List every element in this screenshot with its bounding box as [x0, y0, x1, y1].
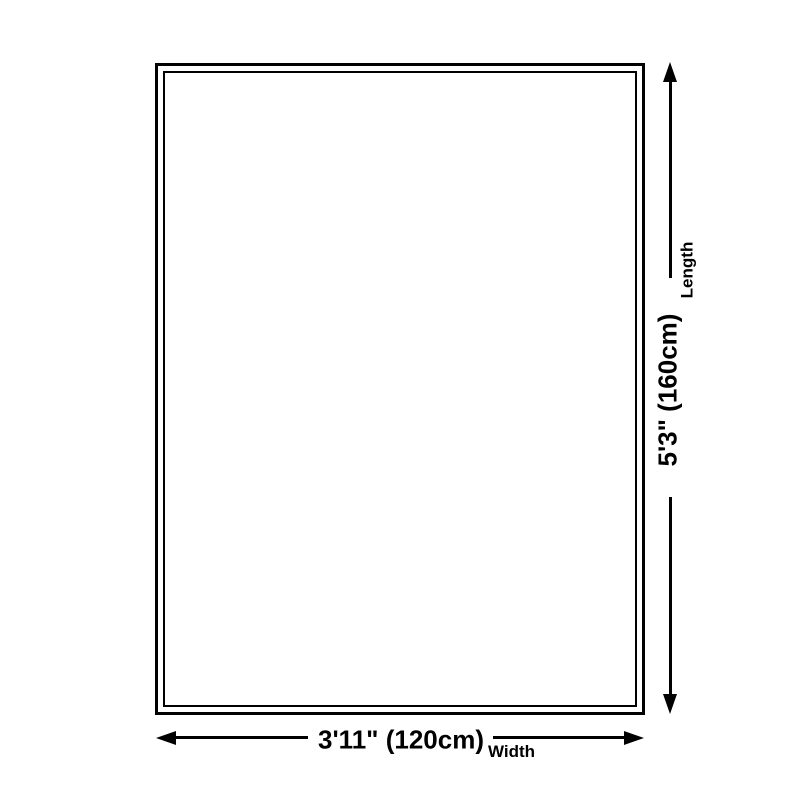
arrow-left-icon — [156, 731, 176, 745]
rug-outline — [155, 63, 645, 715]
width-dimension-value: 3'11" (120cm) — [318, 726, 484, 755]
width-dimension-label: Width — [488, 743, 535, 760]
length-dimension-line-lower — [669, 497, 672, 694]
length-dimension-value: 5'3" (160cm) — [654, 314, 683, 467]
arrow-down-icon — [663, 694, 677, 714]
width-dimension-line-left — [175, 736, 308, 739]
arrow-right-icon — [624, 731, 644, 745]
rug-size-diagram: Length 5'3" (160cm) 3'11" (120cm) Width — [0, 0, 800, 800]
rug-inner-outline — [163, 71, 637, 707]
width-dimension-line-right — [493, 736, 624, 739]
length-dimension-label: Length — [679, 242, 696, 299]
arrow-up-icon — [663, 62, 677, 82]
length-dimension-line-upper — [669, 80, 672, 278]
